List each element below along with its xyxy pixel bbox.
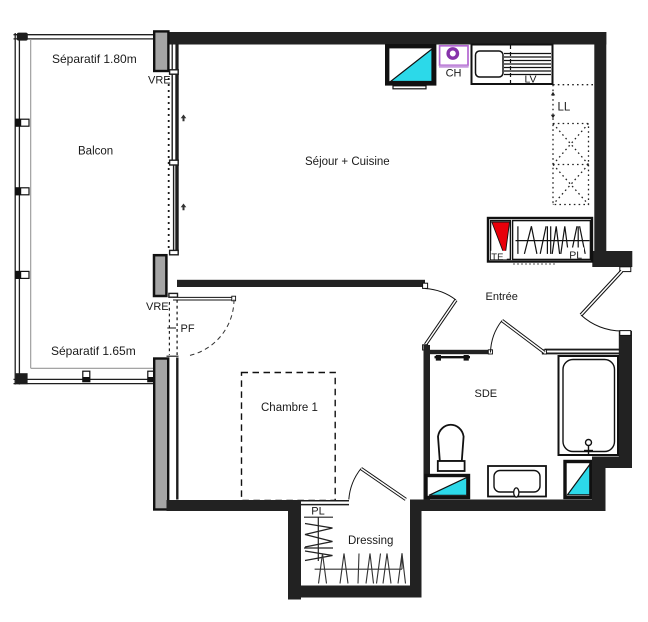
svg-text:PF: PF [181,323,195,335]
svg-text:Séparatif 1.80m: Séparatif 1.80m [52,52,137,66]
svg-text:LV: LV [525,74,537,86]
svg-text:Dressing: Dressing [348,535,393,547]
svg-text:TE: TE [491,252,503,263]
svg-text:PL: PL [569,249,582,261]
svg-text:VRE: VRE [148,75,171,87]
svg-text:VRE: VRE [146,301,169,313]
svg-text:Séjour + Cuisine: Séjour + Cuisine [305,156,390,168]
svg-text:PL: PL [311,506,324,518]
svg-text:LL: LL [558,102,571,114]
svg-text:Entrée: Entrée [486,291,518,303]
svg-text:Séparatif 1.65m: Séparatif 1.65m [51,344,136,358]
svg-text:Balcon: Balcon [78,146,113,158]
svg-text:CH: CH [446,68,462,80]
svg-text:Chambre 1: Chambre 1 [261,402,318,414]
svg-text:SDE: SDE [475,388,498,400]
